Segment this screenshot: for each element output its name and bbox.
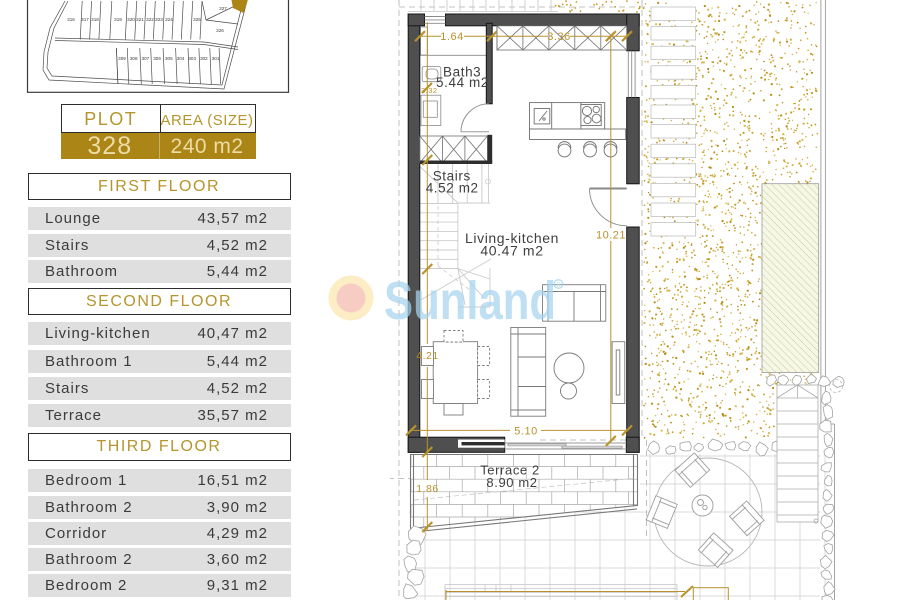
svg-text:304: 304 <box>177 56 185 61</box>
svg-text:306: 306 <box>153 56 161 61</box>
svg-text:R: R <box>556 282 561 289</box>
svg-text:4.52 m2: 4.52 m2 <box>426 181 479 196</box>
svg-text:305: 305 <box>165 56 173 61</box>
svg-text:325: 325 <box>193 17 201 22</box>
svg-text:319: 319 <box>114 17 122 22</box>
svg-text:318: 318 <box>91 17 99 22</box>
svg-text:323: 323 <box>155 17 163 22</box>
svg-text:327: 327 <box>219 6 227 11</box>
svg-text:40.47 m2: 40.47 m2 <box>480 243 543 259</box>
svg-text:308: 308 <box>130 56 138 61</box>
svg-text:5.10: 5.10 <box>514 426 537 438</box>
svg-text:1.86: 1.86 <box>416 483 438 495</box>
svg-text:8.90 m2: 8.90 m2 <box>486 475 537 490</box>
svg-text:317: 317 <box>81 17 89 22</box>
svg-text:301: 301 <box>212 56 220 61</box>
svg-text:302: 302 <box>200 56 208 61</box>
svg-text:321: 321 <box>136 17 144 22</box>
svg-text:10.21: 10.21 <box>596 230 626 242</box>
svg-text:Sunland: Sunland <box>384 271 556 331</box>
svg-text:1.64: 1.64 <box>440 31 463 43</box>
svg-text:3.36: 3.36 <box>547 31 570 43</box>
svg-text:5.44 m2: 5.44 m2 <box>436 75 489 90</box>
svg-text:303: 303 <box>188 56 196 61</box>
svg-text:320: 320 <box>127 17 135 22</box>
svg-text:324: 324 <box>165 17 173 22</box>
svg-text:307: 307 <box>142 56 150 61</box>
svg-text:4.21: 4.21 <box>416 350 438 362</box>
svg-text:326: 326 <box>216 28 224 33</box>
svg-text:322: 322 <box>146 17 154 22</box>
svg-text:316: 316 <box>67 17 75 22</box>
svg-text:309: 309 <box>118 56 126 61</box>
